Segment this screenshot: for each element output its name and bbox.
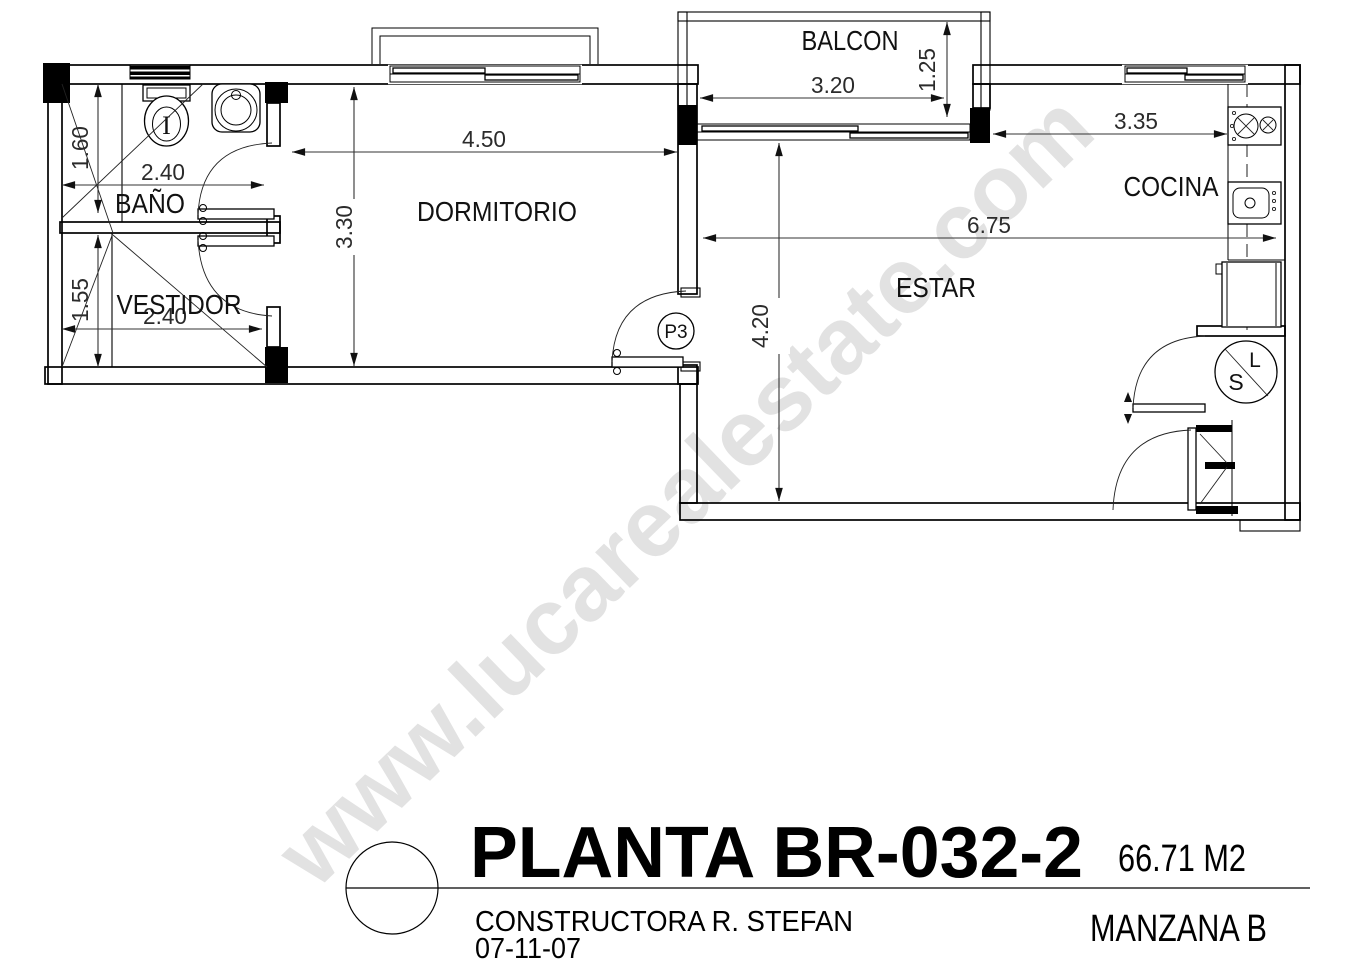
door-leaf — [198, 209, 274, 219]
fridge-body — [1222, 262, 1281, 327]
parapet-right — [981, 12, 990, 110]
window-cocina — [1122, 65, 1248, 84]
closet-shelf-mid — [1205, 462, 1235, 469]
dim-dormitorio-width: 4.50 — [462, 126, 506, 152]
laundry-label-bottom: S — [1228, 369, 1243, 395]
door-tag-label: P3 — [664, 322, 687, 343]
entry-closet — [1196, 420, 1238, 516]
dim-estar-height: 4.20 — [747, 304, 773, 348]
plan-date: 07-11-07 — [475, 933, 581, 965]
plan-title: PLANTA BR-032-2 — [470, 813, 1083, 893]
dim-estar-width: 6.75 — [967, 212, 1011, 238]
toilet: I — [143, 85, 190, 146]
column-top-left — [43, 63, 70, 103]
entry-step — [1240, 520, 1300, 531]
column-balcon-left — [678, 105, 697, 145]
bano-vestidor-divider-wall — [60, 222, 280, 233]
stove — [1228, 107, 1281, 145]
window-sill-box — [372, 28, 598, 64]
dim-bano-height: 1.60 — [67, 126, 93, 170]
dim-cocina-width: 3.35 — [1114, 108, 1158, 134]
dim-vestidor-height: 1.55 — [67, 278, 93, 322]
swing-arrow-up — [1124, 392, 1132, 402]
sliding-door-balcon — [697, 124, 970, 140]
sliding-panel-right — [850, 133, 968, 138]
estar-left-wall — [680, 384, 697, 503]
door-hinge-dot — [614, 368, 621, 375]
bifold-fold — [1200, 434, 1227, 463]
bano-door — [198, 143, 274, 225]
right-exterior-wall — [1285, 65, 1300, 520]
dim-balcon-width: 3.20 — [811, 72, 855, 98]
window-bar — [130, 77, 190, 80]
dim-balcon-depth: 1.25 — [914, 48, 940, 92]
laundry-unit: L S — [1215, 341, 1277, 403]
column-vestidor-bottom — [265, 347, 288, 383]
bifold-fold — [1200, 467, 1227, 504]
window-bano — [130, 65, 190, 79]
block-name: MANZANA B — [1090, 908, 1267, 950]
room-label-dormitorio: DORMITORIO — [417, 196, 577, 227]
closet-shelf-bottom — [1196, 506, 1238, 514]
dim-dormitorio-height: 3.30 — [331, 205, 357, 249]
door-swing-arc — [1113, 430, 1191, 510]
window-bar — [130, 72, 190, 76]
title-block: PLANTA BR-032-2 66.71 M2 CONSTRUCTORA R.… — [346, 813, 1310, 965]
room-label-cocina: COCINA — [1124, 171, 1219, 202]
bottom-wall-left-wing — [45, 367, 698, 384]
swing-arrow-down — [1124, 414, 1132, 424]
fridge-handle — [1216, 264, 1222, 274]
window-bar — [130, 66, 190, 70]
door-leaf — [612, 357, 683, 367]
entry-door-upper — [1124, 336, 1205, 424]
window-panel-right — [1185, 75, 1243, 80]
window-panel-right — [485, 75, 578, 80]
laundry-label-top: L — [1249, 349, 1261, 372]
window-panel-left — [393, 68, 485, 73]
parapet-top — [678, 12, 990, 21]
parapet-left — [678, 12, 687, 110]
p3-door: P3 — [612, 291, 694, 375]
door-hinge-dot — [614, 350, 621, 357]
room-label-balcon: BALCON — [802, 25, 899, 56]
door-leaf — [1188, 428, 1196, 510]
vestidor-right-wall — [267, 307, 280, 347]
room-labels: BAÑO VESTIDOR DORMITORIO BALCON COCINA E… — [115, 25, 1219, 320]
dim-bano-width: 2.40 — [141, 159, 185, 185]
room-label-estar: ESTAR — [896, 272, 976, 303]
bathroom-sink — [212, 84, 260, 132]
floor-plan-drawing: I P3 — [0, 0, 1360, 966]
entry-door-lower — [1113, 428, 1196, 510]
room-label-bano: BAÑO — [115, 188, 185, 219]
column-bano-dormitorio — [265, 82, 288, 103]
sliding-panel-left — [702, 126, 858, 131]
door-swing-arc — [198, 143, 272, 215]
window-panel-left — [1127, 68, 1187, 73]
door-swing-arc — [1133, 336, 1205, 408]
door-leaf — [1133, 404, 1205, 412]
bano-right-wall — [267, 103, 280, 146]
refrigerator — [1216, 262, 1281, 327]
kitchen-sink — [1228, 182, 1281, 224]
column-balcon-right — [970, 108, 990, 143]
room-label-vestidor: VESTIDOR — [117, 289, 242, 320]
closet-shelf-top — [1196, 425, 1232, 432]
plan-area: 66.71 M2 — [1118, 838, 1246, 880]
door-leaf — [198, 236, 274, 246]
window-dormitorio — [372, 28, 598, 84]
